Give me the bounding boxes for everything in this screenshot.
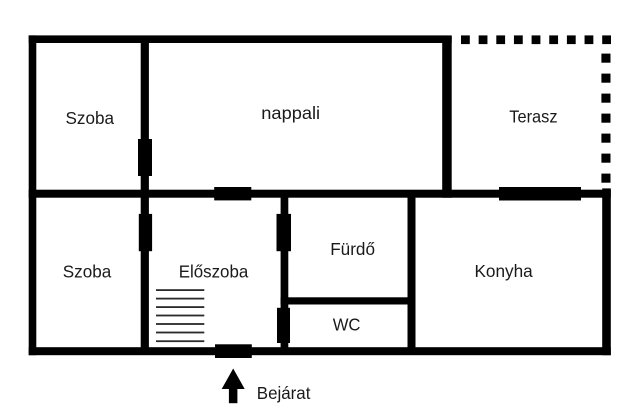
svg-text:Fürdő: Fürdő <box>330 239 375 259</box>
svg-text:Szoba: Szoba <box>66 108 115 128</box>
svg-text:Bejárat: Bejárat <box>257 383 311 403</box>
svg-text:Terasz: Terasz <box>509 106 557 126</box>
svg-text:nappali: nappali <box>261 103 320 123</box>
svg-text:WC: WC <box>333 314 361 334</box>
svg-text:Konyha: Konyha <box>474 261 533 281</box>
svg-text:Előszoba: Előszoba <box>179 262 249 282</box>
svg-text:Szoba: Szoba <box>63 262 112 282</box>
